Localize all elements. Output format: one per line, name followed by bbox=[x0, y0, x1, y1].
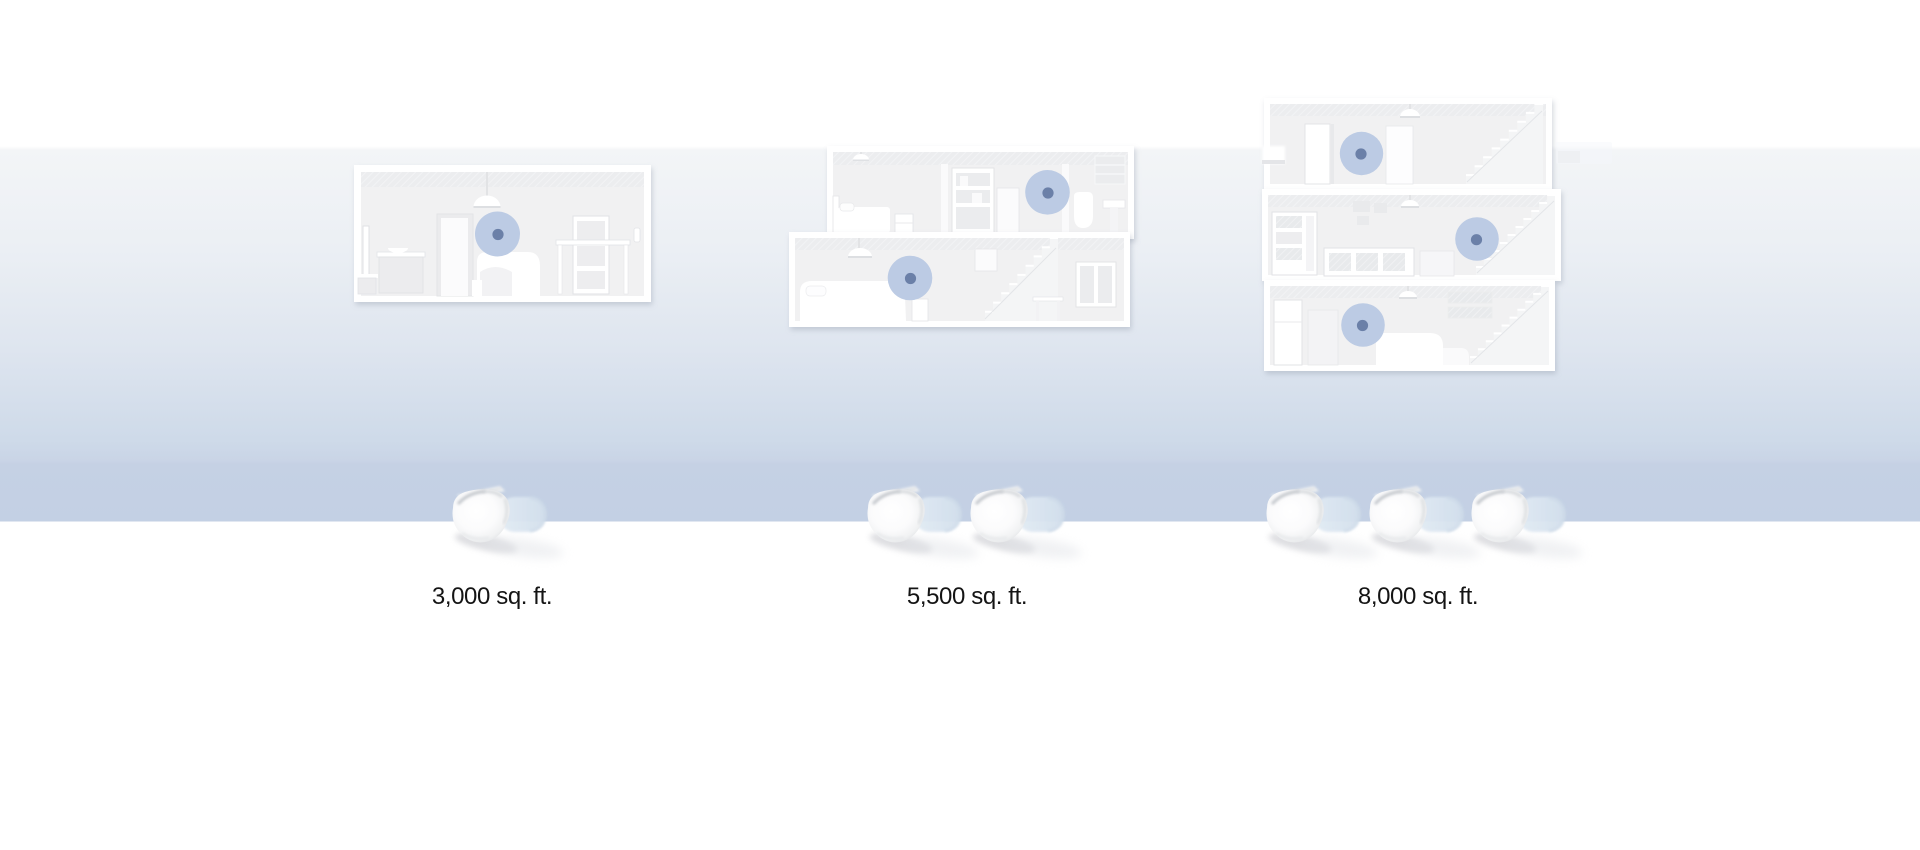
svg-text:5,500 sq. ft.: 5,500 sq. ft. bbox=[907, 583, 1027, 610]
svg-text:8,000 sq. ft.: 8,000 sq. ft. bbox=[1358, 583, 1478, 610]
svg-text:3,000 sq. ft.: 3,000 sq. ft. bbox=[432, 583, 552, 610]
